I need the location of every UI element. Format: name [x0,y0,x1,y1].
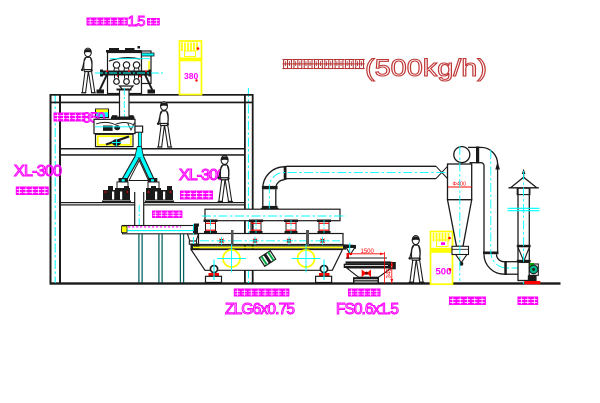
svg-text:Φ400: Φ400 [453,182,467,188]
svg-text:500: 500 [436,267,452,278]
svg-text:(500kg/h): (500kg/h) [365,55,487,82]
svg-text:1.5: 1.5 [128,13,146,30]
svg-text:XL-300: XL-300 [14,163,62,180]
svg-text:345: 345 [387,268,393,279]
svg-text:ZLG6x0.75: ZLG6x0.75 [225,301,295,318]
svg-text:FS0.6x1.5: FS0.6x1.5 [336,301,399,318]
svg-text:1500: 1500 [361,249,375,255]
